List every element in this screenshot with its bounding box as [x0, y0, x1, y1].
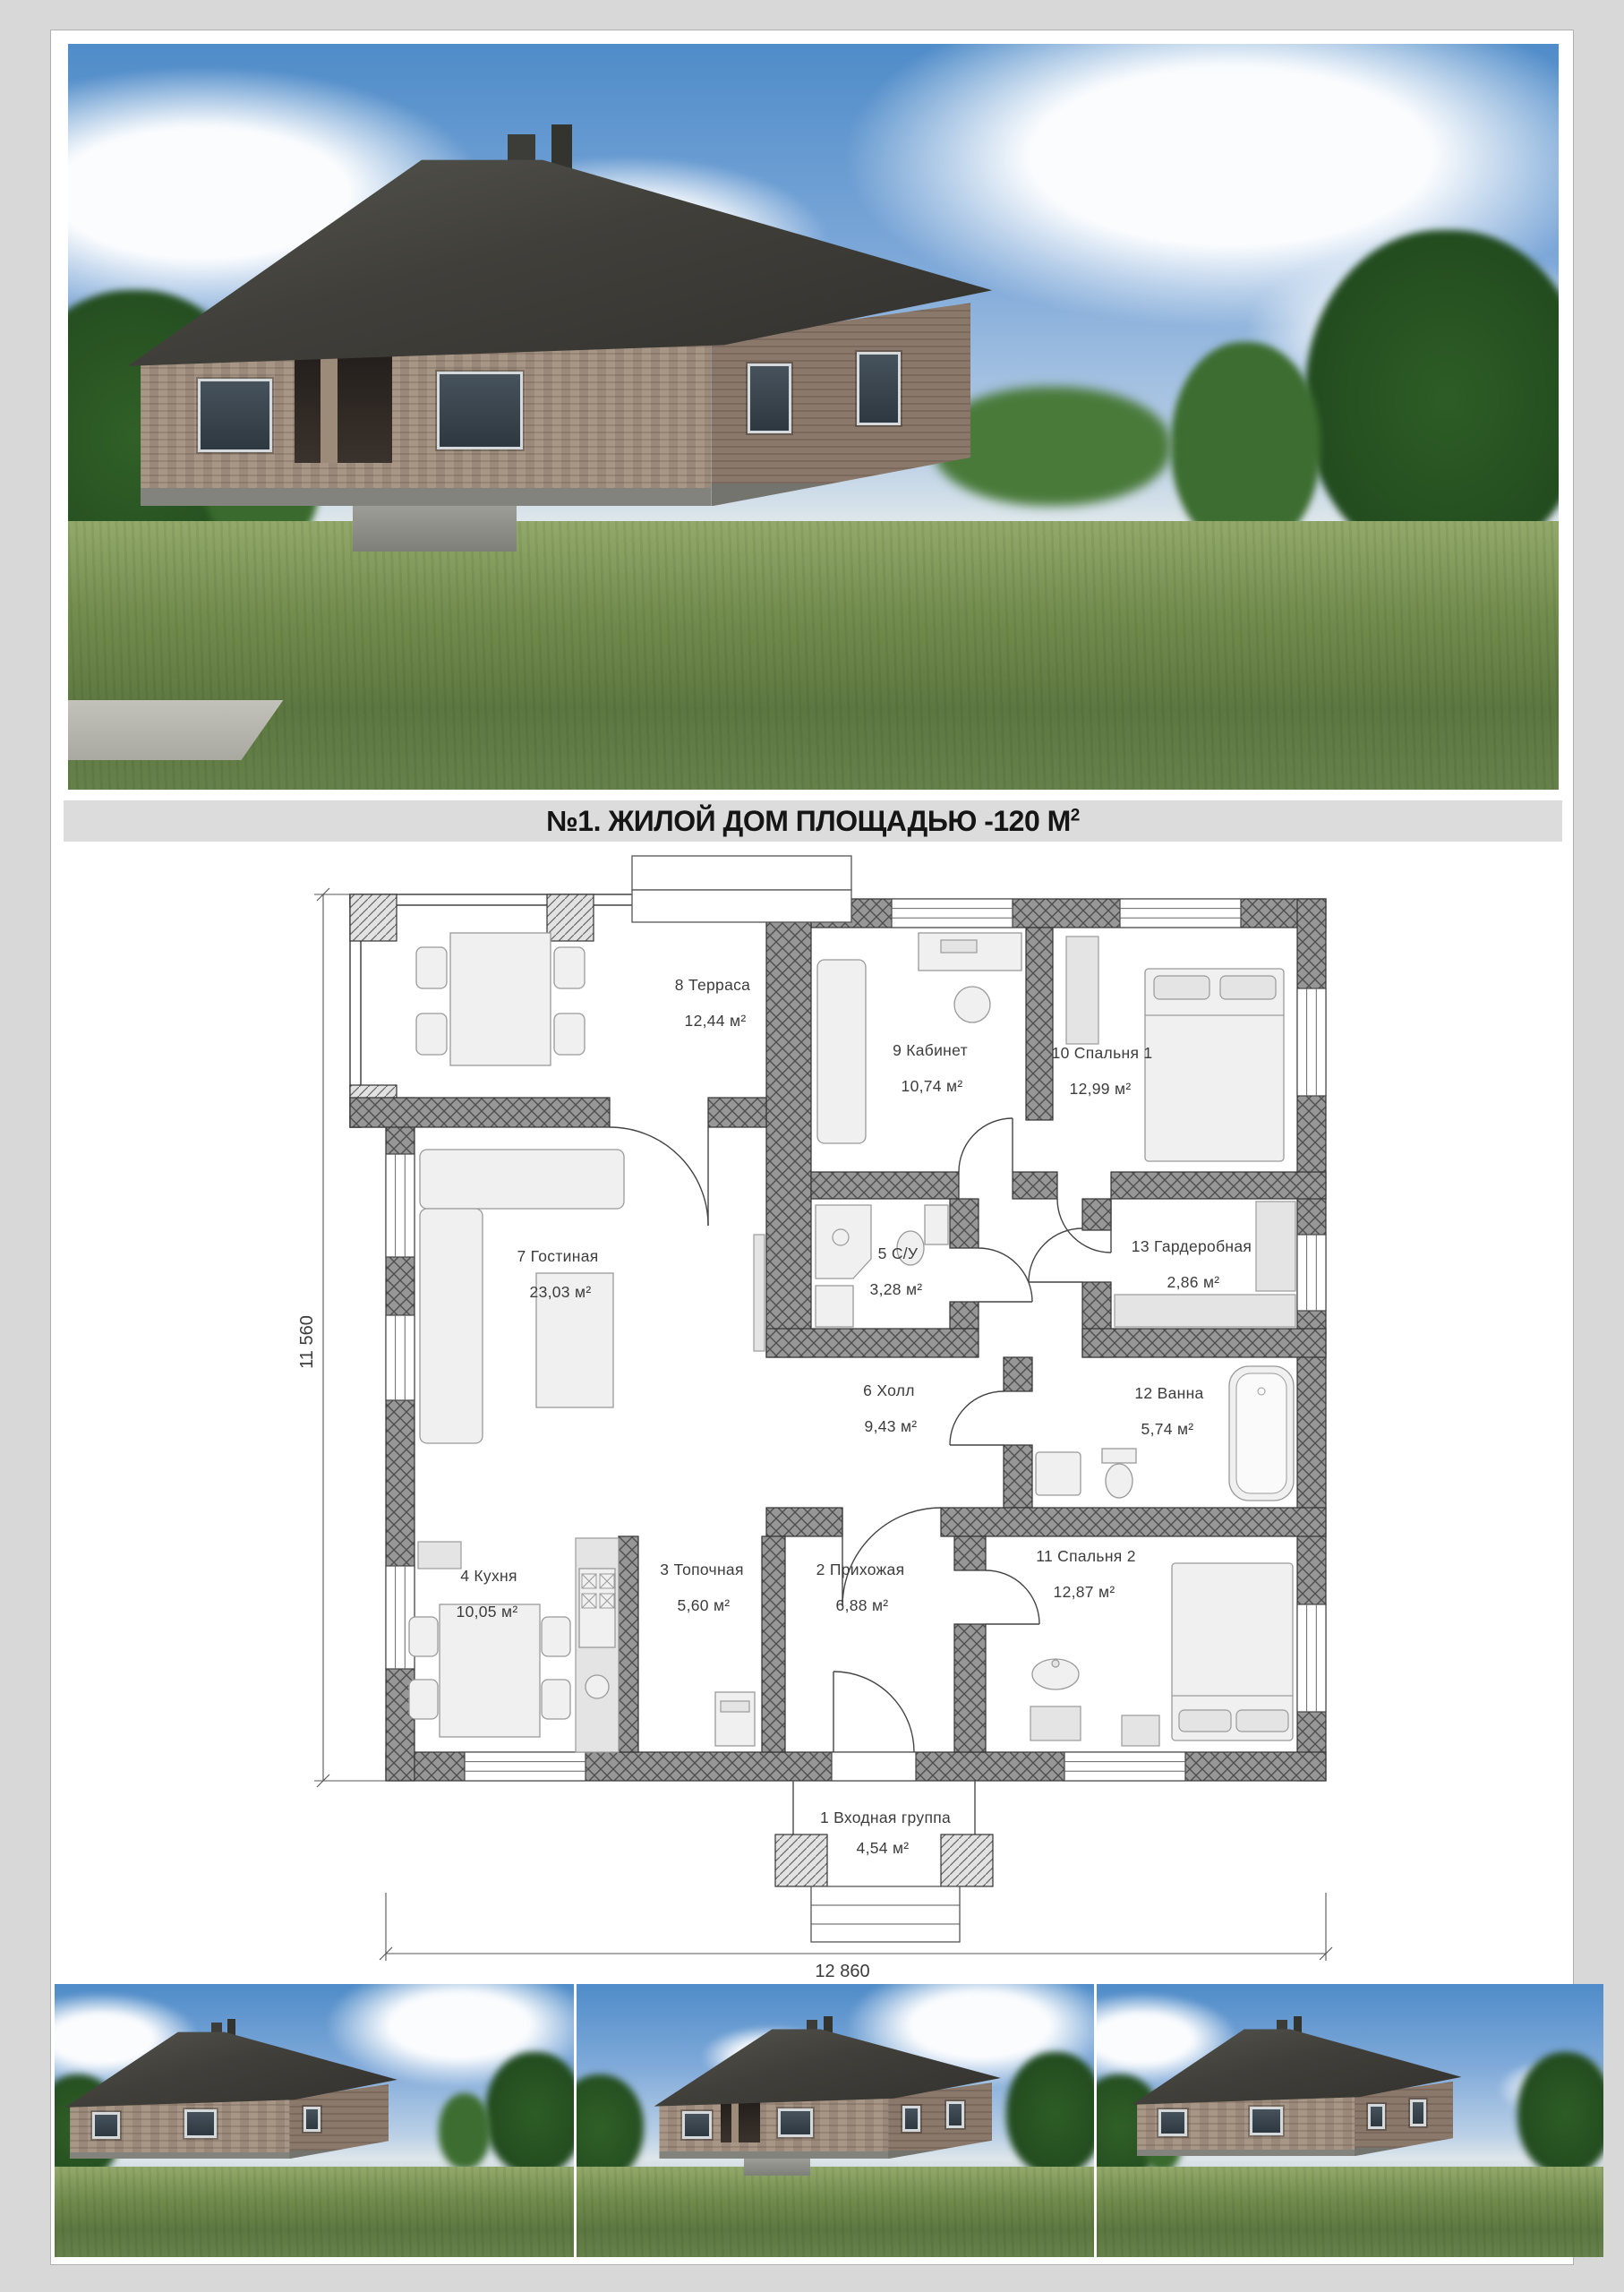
lawn [55, 2167, 574, 2257]
entry-steps [353, 506, 517, 552]
window [946, 2101, 964, 2129]
tree [1517, 2052, 1603, 2175]
room-area: 5,60 м² [678, 1596, 731, 1614]
house-wall-front [70, 2097, 289, 2159]
window [1250, 2107, 1282, 2135]
thumb-render-1 [55, 1984, 574, 2257]
chimney-block [632, 856, 851, 922]
room-area: 5,74 м² [1141, 1420, 1194, 1438]
room-label: 12 Ванна [1134, 1384, 1203, 1402]
window [748, 363, 791, 432]
dimension-width: 12 860 [815, 1962, 869, 1981]
house-wall-front [1137, 2094, 1355, 2156]
tree [1305, 230, 1559, 566]
room-area: 3,28 м² [870, 1280, 923, 1298]
house-3d [128, 156, 993, 507]
tree [439, 2093, 491, 2169]
room-label: 5 С/У [878, 1244, 919, 1262]
room-label: 13 Гардеробная [1132, 1237, 1252, 1255]
room-area: 6,88 м² [836, 1596, 889, 1614]
window [1368, 2104, 1385, 2129]
window [184, 2109, 218, 2138]
dimension-height: 11 560 [297, 1315, 317, 1369]
house-3d [654, 2028, 1001, 2159]
project-sheet: №1. ЖИЛОЙ ДОМ ПЛОЩАДЬЮ -120 М2 [50, 30, 1574, 2265]
room-area: 12,99 м² [1070, 1080, 1132, 1098]
main-exterior-render [68, 44, 1559, 790]
porch [721, 2102, 759, 2142]
window [437, 372, 523, 449]
room-label: 9 Кабинет [893, 1041, 968, 1059]
window [1410, 2100, 1427, 2126]
room-area: 12,87 м² [1054, 1583, 1115, 1601]
window [198, 379, 272, 453]
lawn [577, 2167, 1094, 2257]
title-superscript: 2 [1071, 806, 1080, 825]
house-wall-front [141, 338, 711, 507]
room-area: 9,43 м² [865, 1417, 918, 1435]
room-label: 10 Спальня 1 [1052, 1044, 1153, 1062]
house-wall-front [659, 2096, 888, 2159]
window [857, 352, 901, 425]
porch-column [731, 2102, 739, 2142]
porch [295, 355, 391, 462]
room-area: 10,05 м² [457, 1603, 518, 1621]
room-area: 4,54 м² [857, 1839, 910, 1857]
lawn [1097, 2167, 1603, 2257]
room-label: 11 Спальня 2 [1036, 1547, 1136, 1565]
room-area: 2,86 м² [1167, 1273, 1220, 1291]
window [902, 2106, 920, 2132]
room-label: 7 Гостиная [517, 1247, 598, 1265]
thumb-render-3 [1097, 1984, 1603, 2257]
window [1158, 2109, 1187, 2136]
house-3d [65, 2031, 397, 2159]
porch-column [321, 355, 338, 462]
window [778, 2108, 812, 2137]
floor-plan-drawing: 11 560 12 860 8 Терраса 12,44 м² 9 Кабин… [225, 854, 1371, 1982]
lawn [68, 521, 1559, 790]
room-area: 12,44 м² [685, 1012, 747, 1030]
room-label: 1 Входная группа [820, 1809, 951, 1826]
room-label: 8 Терраса [675, 976, 750, 994]
window [682, 2111, 712, 2139]
tree [485, 2052, 574, 2175]
room-label: 4 Кухня [460, 1567, 517, 1585]
thumb-render-2 [577, 1984, 1094, 2257]
tree [1006, 2052, 1094, 2175]
window [303, 2107, 321, 2132]
sheet-title-band: №1. ЖИЛОЙ ДОМ ПЛОЩАДЬЮ -120 М2 [64, 800, 1562, 842]
entry-steps [744, 2159, 810, 2176]
room-label: 2 Прихожая [816, 1561, 905, 1578]
page: №1. ЖИЛОЙ ДОМ ПЛОЩАДЬЮ -120 М2 [0, 0, 1624, 2292]
page-title: №1. ЖИЛОЙ ДОМ ПЛОЩАДЬЮ -120 М2 [546, 805, 1080, 838]
window [92, 2112, 121, 2139]
room-label: 3 Топочная [660, 1561, 743, 1578]
room-area: 23,03 м² [530, 1283, 592, 1301]
room-label: 6 Холл [863, 1381, 915, 1399]
house-3d [1133, 2028, 1462, 2156]
floor-plan: 11 560 12 860 8 Терраса 12,44 м² 9 Кабин… [225, 854, 1371, 1982]
entry-steps [811, 1886, 960, 1942]
room-area: 10,74 м² [902, 1077, 963, 1095]
tree [1171, 342, 1321, 551]
